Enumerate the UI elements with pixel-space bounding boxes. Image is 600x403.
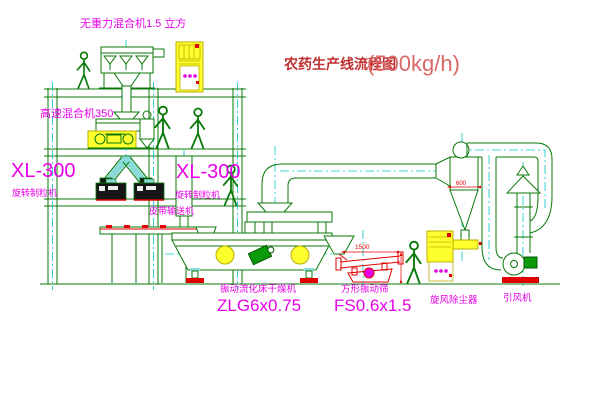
mixer-side-port: [153, 49, 164, 57]
screen-name: 方形振动筛: [341, 283, 389, 295]
person-near-screen: [406, 242, 420, 283]
vibration-motor-right: [291, 246, 309, 264]
person-top-floor: [77, 52, 89, 88]
granulator-right-name: 旋转制粒机: [175, 189, 220, 200]
vibration-motor-left: [216, 246, 234, 264]
floor-slab-top: [44, 89, 246, 97]
drawing-capacity: (500kg/h): [367, 51, 460, 76]
exhaust-duct: [262, 164, 436, 203]
granulator-left-name: 旋转制粒机: [12, 187, 57, 198]
gravity-mixer-label: 无重力混合机1.5 立方: [80, 16, 186, 30]
dryer-foot-right: [300, 278, 318, 283]
control-cabinet-top: [176, 42, 203, 92]
rain-cap: [507, 176, 540, 193]
rotary-valve: [452, 240, 478, 249]
fluid-bed-dryer: [172, 203, 332, 283]
induced-draft-fan: [502, 253, 539, 283]
fan-name: 引风机: [503, 292, 532, 304]
dryer-hood: [247, 212, 332, 222]
indicator-light: [447, 233, 451, 237]
cyclone-name: 旋风除尘器: [430, 294, 478, 306]
high-speed-mixer-label: 高速混合机350: [40, 106, 113, 120]
granulator-right-model: XL-300: [176, 161, 241, 183]
screen-model: FS0.6x1.5: [334, 296, 412, 315]
person-second-floor: [155, 107, 169, 148]
granulator-right: [134, 179, 164, 200]
belt-conveyor-label: 皮带输送机: [149, 205, 194, 216]
fan-motor: [524, 257, 537, 268]
screen-motor: [364, 268, 374, 278]
mixer-discharge-pipe: [122, 86, 131, 112]
pesticide-line-flow-drawing: 农药生产线流程图 (500kg/h) 无重力混合机1.5 立方 高速混合机350…: [0, 0, 600, 403]
mixer-filter-unit: [140, 119, 154, 139]
vibrating-screen: [324, 236, 403, 282]
outlet-pipes: [467, 143, 552, 270]
dryer-model: ZLG6x0.75: [217, 296, 301, 315]
dryer-name: 振动流化床干燥机: [220, 283, 297, 295]
indicator-light: [195, 44, 199, 48]
floor-slab-middle: [44, 149, 246, 156]
cyclone-dimension-text: 600: [456, 181, 467, 187]
exhaust-stack: [507, 166, 540, 253]
person-second-floor-right: [191, 109, 205, 148]
screen-dimension-text: 1500: [355, 244, 370, 251]
cad-canvas: 农药生产线流程图 (500kg/h) 无重力混合机1.5 立方 高速混合机350…: [0, 0, 600, 403]
dryer-foot-left: [186, 278, 204, 283]
fan-base: [502, 277, 539, 283]
gravity-free-mixer: [99, 47, 164, 112]
control-cabinet-right: [427, 231, 453, 281]
mixer-discharge-cone: [114, 73, 140, 86]
granulator-left-model: XL-300: [11, 160, 76, 182]
screen-feed-hopper: [324, 236, 354, 254]
